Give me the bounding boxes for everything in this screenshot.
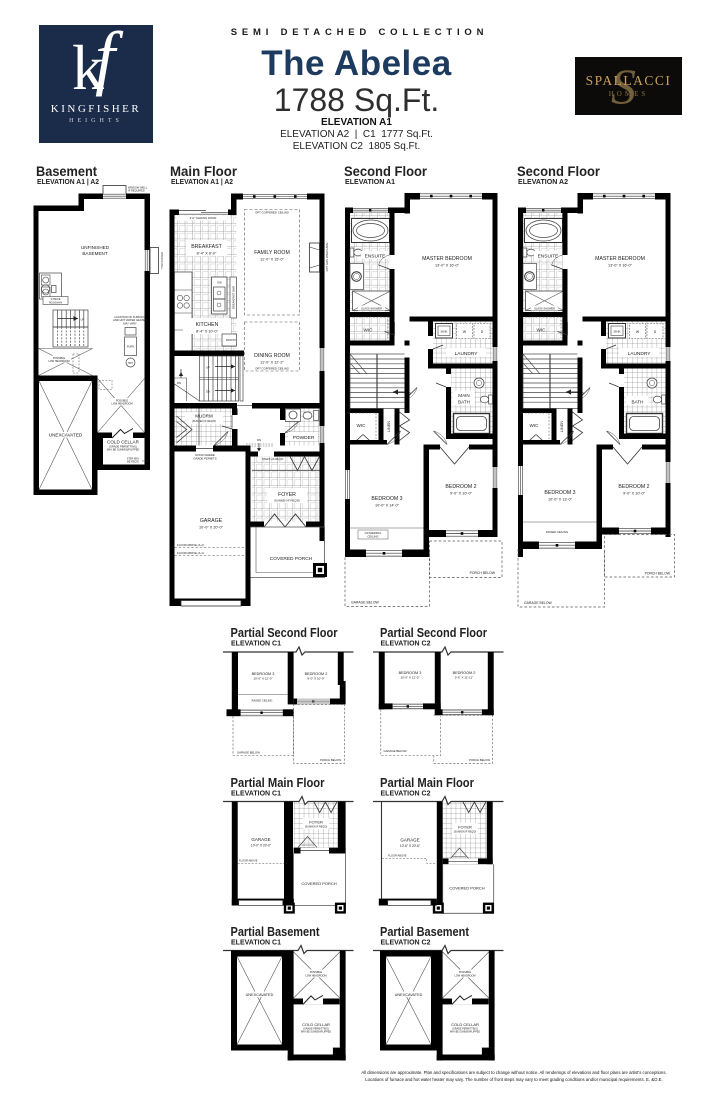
svg-text:GLASS SHOWER: GLASS SHOWER (534, 307, 555, 311)
svg-text:8'-4" X 8'-0": 8'-4" X 8'-0" (197, 252, 217, 256)
svg-text:CEILING: CEILING (367, 535, 378, 539)
svg-text:GARAGE: GARAGE (200, 518, 223, 524)
svg-text:BATH: BATH (458, 400, 470, 405)
svg-text:9'-0" X 10'-0": 9'-0" X 10'-0" (450, 492, 473, 496)
svg-text:Second Floor: Second Floor (517, 164, 601, 179)
svg-text:BEDROOM 3: BEDROOM 3 (544, 490, 575, 496)
svg-text:LOW HEADROOM: LOW HEADROOM (454, 974, 475, 977)
svg-text:RAISED CEILING: RAISED CEILING (252, 699, 273, 703)
svg-text:10'-6" X 20'-6": 10'-6" X 20'-6" (400, 844, 420, 848)
svg-text:MAY BE SUNKEN/FLIPPED: MAY BE SUNKEN/FLIPPED (301, 1031, 331, 1034)
svg-text:DN: DN (177, 381, 181, 385)
svg-text:BEDROOM 2: BEDROOM 2 (305, 672, 328, 676)
svg-text:10'-0" X 12'-0": 10'-0" X 12'-0" (254, 677, 273, 681)
svg-text:FLOOR ABOVE (A-2): FLOOR ABOVE (A-2) (177, 543, 204, 547)
svg-text:10'-0" X 14'-0": 10'-0" X 14'-0" (375, 504, 400, 508)
svg-text:BEDROOM 2: BEDROOM 2 (453, 671, 476, 675)
svg-text:HWT: HWT (128, 363, 134, 365)
svg-text:FLOOR ABOVE: FLOOR ABOVE (239, 859, 258, 863)
svg-text:FAMILY ROOM: FAMILY ROOM (254, 250, 290, 256)
svg-text:RAISED CEILING: RAISED CEILING (546, 530, 568, 534)
svg-text:BREAKFAST BAR: BREAKFAST BAR (232, 286, 236, 309)
svg-text:(SUNKEN IF REQ'D): (SUNKEN IF REQ'D) (454, 831, 477, 834)
svg-text:11'-0" X 12'-2": 11'-0" X 12'-2" (260, 361, 284, 365)
svg-text:BEDROOM 2: BEDROOM 2 (445, 484, 476, 490)
svg-text:LAUNDRY: LAUNDRY (628, 351, 652, 357)
svg-text:ELEVATION A1: ELEVATION A1 (345, 179, 395, 186)
svg-text:MAY VARY: MAY VARY (123, 321, 137, 325)
svg-text:BEDROOM 3: BEDROOM 3 (399, 671, 422, 675)
svg-text:PORCH BELOW: PORCH BELOW (469, 758, 490, 762)
svg-text:PORCH BELOW: PORCH BELOW (645, 572, 671, 576)
svg-text:UP: UP (81, 318, 85, 322)
svg-text:ELEVATION A2: ELEVATION A2 (518, 179, 568, 186)
svg-text:ELEVATION A1 | A2: ELEVATION A1 | A2 (171, 179, 233, 186)
svg-text:PORCH BELOW: PORCH BELOW (470, 571, 496, 575)
svg-text:9'-0" X 10'-0": 9'-0" X 10'-0" (623, 492, 646, 496)
svg-text:FLOOR ABOVE (A-1): FLOOR ABOVE (A-1) (177, 551, 204, 555)
svg-text:10'-0" X 12'-0": 10'-0" X 12'-0" (401, 676, 420, 680)
svg-text:FURN: FURN (127, 346, 134, 349)
svg-text:MASTER BEDROOM: MASTER BEDROOM (422, 256, 472, 262)
svg-text:ELEVATION C1: ELEVATION C1 (231, 791, 281, 798)
svg-text:SINK: SINK (613, 330, 620, 334)
svg-text:ELEVATION C2: ELEVATION C2 (381, 940, 431, 947)
svg-text:ELEVATION C2: ELEVATION C2 (381, 791, 431, 798)
svg-text:FOYER: FOYER (309, 820, 323, 825)
svg-text:BATH: BATH (632, 400, 644, 405)
svg-text:KITCHEN: KITCHEN (196, 322, 219, 328)
svg-text:Partial Second Floor: Partial Second Floor (231, 625, 338, 640)
svg-text:WIC: WIC (530, 423, 540, 428)
svg-text:(SUNKEN IF REQ'D): (SUNKEN IF REQ'D) (192, 419, 216, 423)
svg-text:Partial Main Floor: Partial Main Floor (231, 775, 325, 790)
svg-text:LAUNDRY: LAUNDRY (455, 351, 479, 357)
svg-text:COVERED PORCH: COVERED PORCH (270, 556, 313, 562)
svg-text:MAY BE SUNKEN/FLIPPED: MAY BE SUNKEN/FLIPPED (450, 1031, 480, 1034)
svg-text:WIC: WIC (537, 328, 547, 333)
svg-text:LINEN: LINEN (387, 421, 391, 432)
svg-text:ELEVATION C1: ELEVATION C1 (231, 940, 281, 947)
svg-text:DN: DN (206, 390, 210, 394)
svg-text:SINK: SINK (440, 330, 447, 334)
svg-text:ELEVATION C1: ELEVATION C1 (231, 641, 281, 648)
svg-text:WIC: WIC (357, 423, 367, 428)
svg-text:BEDROOM 3: BEDROOM 3 (371, 496, 402, 502)
svg-text:UNEXCAVATED: UNEXCAVATED (246, 993, 274, 997)
svg-text:GARAGE: GARAGE (400, 838, 419, 843)
svg-text:PORCH BELOW: PORCH BELOW (320, 758, 341, 762)
svg-text:Main Floor: Main Floor (170, 164, 238, 179)
svg-text:BASEMENT: BASEMENT (82, 251, 107, 256)
svg-text:Basement: Basement (36, 164, 97, 179)
svg-text:13'-0" X 16'-0": 13'-0" X 16'-0" (608, 264, 633, 268)
svg-text:Partial Main Floor: Partial Main Floor (380, 775, 474, 790)
svg-text:ELEVATION C2: ELEVATION C2 (381, 641, 431, 648)
svg-text:COLD CELLAR: COLD CELLAR (451, 1022, 479, 1027)
svg-text:OPT COFFERED CEILING: OPT COFFERED CEILING (255, 211, 289, 215)
svg-text:IF REQUIRED: IF REQUIRED (128, 189, 145, 193)
svg-text:MUDRM: MUDRM (195, 414, 213, 419)
svg-text:COVERED PORCH: COVERED PORCH (449, 886, 484, 891)
svg-text:11'-0" X 15'-0": 11'-0" X 15'-0" (260, 258, 284, 262)
svg-text:MAIN: MAIN (458, 393, 469, 398)
svg-text:GARAGE BELOW: GARAGE BELOW (384, 749, 407, 753)
svg-text:PANTRY: PANTRY (226, 338, 237, 342)
svg-text:LOW HEADROOM: LOW HEADROOM (305, 974, 326, 977)
svg-text:MAY BE SUNKEN/FLIPPED: MAY BE SUNKEN/FLIPPED (107, 447, 140, 451)
svg-text:UNEXCAVATED: UNEXCAVATED (395, 993, 423, 997)
svg-text:COLD CELLAR: COLD CELLAR (107, 440, 140, 445)
svg-text:Second Floor: Second Floor (344, 164, 428, 179)
svg-text:UNEXCAVATED: UNEXCAVATED (49, 433, 83, 438)
svg-text:COVERED PORCH: COVERED PORCH (301, 881, 336, 886)
svg-text:9'-0" X 10'-0": 9'-0" X 10'-0" (307, 677, 324, 681)
svg-text:WIC: WIC (364, 328, 374, 333)
svg-text:GARAGE: GARAGE (251, 837, 270, 842)
svg-text:GLASS SHOWER: GLASS SHOWER (361, 307, 382, 311)
svg-text:GARAGE BELOW: GARAGE BELOW (237, 751, 260, 755)
svg-text:BEDROOM 2: BEDROOM 2 (618, 484, 649, 490)
svg-text:4'-0" SLIDING DOOR: 4'-0" SLIDING DOOR (190, 216, 217, 220)
svg-text:LOW HEADROOM: LOW HEADROOM (111, 403, 132, 406)
svg-text:Partial Second Floor: Partial Second Floor (380, 625, 487, 640)
svg-text:DW: DW (217, 281, 222, 285)
svg-text:LOW HEADROOM: LOW HEADROOM (48, 360, 69, 363)
svg-text:MASTER BEDROOM: MASTER BEDROOM (595, 256, 645, 262)
svg-text:10'-0" X 20'-0": 10'-0" X 20'-0" (251, 844, 271, 848)
svg-text:OPT GAS FIREPLACE: OPT GAS FIREPLACE (325, 243, 329, 272)
svg-text:LINEN: LINEN (560, 421, 564, 432)
svg-text:BE REQ'D: BE REQ'D (127, 461, 139, 464)
svg-text:10'-0" X 13'-0": 10'-0" X 13'-0" (548, 498, 573, 502)
svg-text:POWDER: POWDER (293, 435, 315, 441)
svg-text:WINDOW WELL: WINDOW WELL (160, 252, 163, 270)
svg-text:COLD CELLAR: COLD CELLAR (302, 1022, 330, 1027)
svg-text:13'-0" X 16'-0": 13'-0" X 16'-0" (435, 264, 460, 268)
svg-text:Partial Basement: Partial Basement (231, 924, 321, 939)
svg-text:(SUNKEN IF REQ'D): (SUNKEN IF REQ'D) (305, 826, 328, 829)
svg-text:(SUNKEN IF REQ'D): (SUNKEN IF REQ'D) (274, 499, 300, 503)
svg-text:GRADE PERMITS: GRADE PERMITS (193, 456, 216, 460)
svg-text:GARAGE BELOW: GARAGE BELOW (351, 601, 379, 605)
svg-text:BREAKFAST: BREAKFAST (191, 244, 222, 250)
svg-text:ROUGH-IN: ROUGH-IN (49, 300, 62, 304)
svg-text:8'-4" X 10'-0": 8'-4" X 10'-0" (196, 330, 219, 334)
svg-text:UP: UP (206, 366, 210, 370)
svg-text:OPT COFFERED CEILING: OPT COFFERED CEILING (255, 367, 289, 371)
svg-text:ELEVATION A1 | A2: ELEVATION A1 | A2 (37, 179, 99, 186)
svg-text:DN: DN (257, 438, 261, 442)
svg-text:Partial Basement: Partial Basement (380, 924, 470, 939)
svg-text:9'-6" X 11'-11": 9'-6" X 11'-11" (455, 676, 474, 680)
svg-text:FOYER: FOYER (278, 492, 296, 498)
svg-text:10'-0" X 20'-0": 10'-0" X 20'-0" (199, 526, 224, 530)
svg-text:FLOOR ABOVE: FLOOR ABOVE (388, 854, 407, 858)
svg-text:DINING ROOM: DINING ROOM (254, 353, 290, 359)
svg-text:UNFINISHED: UNFINISHED (81, 245, 110, 250)
svg-text:GARAGE BELOW: GARAGE BELOW (524, 601, 552, 605)
svg-text:BEDROOM 3: BEDROOM 3 (252, 672, 275, 676)
svg-text:FOYER: FOYER (458, 825, 472, 830)
